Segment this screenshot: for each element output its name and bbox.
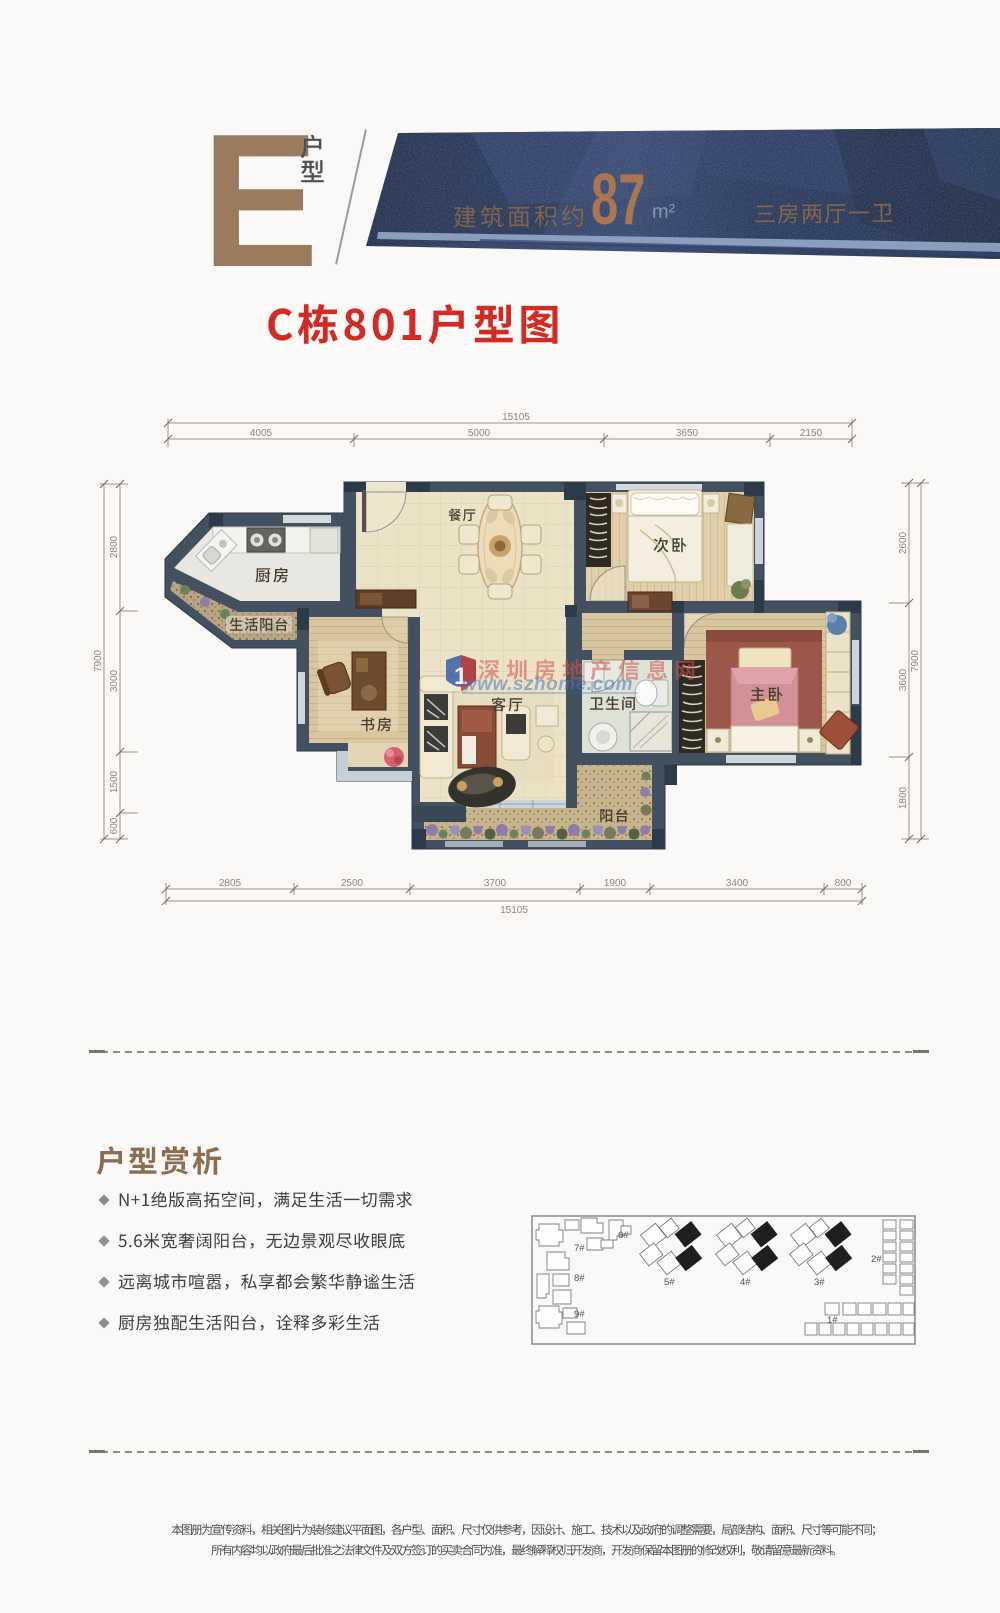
svg-text:7900: 7900 (910, 649, 921, 672)
svg-text:3600: 3600 (898, 668, 909, 691)
svg-text:4005: 4005 (250, 428, 273, 439)
svg-text:2150: 2150 (800, 428, 823, 439)
svg-text:8#: 8# (574, 1273, 585, 1284)
svg-text:9#: 9# (574, 1309, 585, 1320)
svg-text:3700: 3700 (484, 878, 507, 889)
svg-text:2805: 2805 (219, 878, 242, 889)
svg-text:5000: 5000 (468, 428, 491, 439)
svg-text:15105: 15105 (500, 905, 528, 916)
svg-text:5#: 5# (664, 1277, 675, 1288)
svg-text:3000: 3000 (109, 669, 120, 692)
svg-text:www.szhome.com: www.szhome.com (462, 674, 633, 695)
svg-text:3400: 3400 (726, 878, 749, 889)
svg-text:1500: 1500 (109, 770, 120, 793)
svg-text:3#: 3# (814, 1277, 825, 1288)
svg-text:15105: 15105 (502, 412, 530, 423)
svg-text:3650: 3650 (676, 428, 699, 439)
svg-text:1900: 1900 (604, 878, 627, 889)
svg-text:2500: 2500 (341, 878, 364, 889)
svg-text:7900: 7900 (93, 649, 104, 672)
svg-text:2600: 2600 (898, 531, 909, 554)
svg-text:87: 87 (591, 160, 645, 241)
svg-text:800: 800 (835, 878, 852, 889)
svg-text:1800: 1800 (898, 786, 909, 809)
svg-text:4#: 4# (740, 1277, 751, 1288)
svg-text:m²: m² (652, 201, 676, 223)
svg-text:2800: 2800 (109, 535, 120, 558)
svg-text:1#: 1# (827, 1315, 838, 1326)
svg-text:600: 600 (109, 817, 120, 834)
svg-text:7#: 7# (574, 1243, 585, 1254)
svg-text:2#: 2# (871, 1254, 882, 1265)
svg-text:6#: 6# (618, 1230, 629, 1241)
